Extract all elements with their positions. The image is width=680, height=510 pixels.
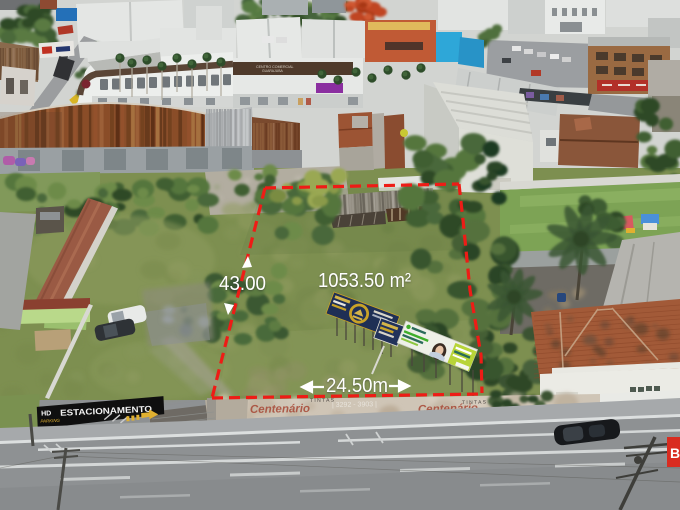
svg-text:GUARAJUBA: GUARAJUBA <box>262 69 283 73</box>
svg-text:1053.50 m²: 1053.50 m² <box>318 270 411 292</box>
svg-text:T I N T A S: T I N T A S <box>310 398 335 404</box>
svg-text:PARKING: PARKING <box>40 418 60 424</box>
svg-text:Centenário: Centenário <box>250 403 310 416</box>
svg-text:24.50m: 24.50m <box>326 375 388 397</box>
svg-text:| 3292 - 3903 |: | 3292 - 3903 | <box>332 401 377 409</box>
svg-text:43.00: 43.00 <box>219 273 266 295</box>
svg-text:HD: HD <box>41 410 51 417</box>
svg-text:B: B <box>670 445 680 461</box>
